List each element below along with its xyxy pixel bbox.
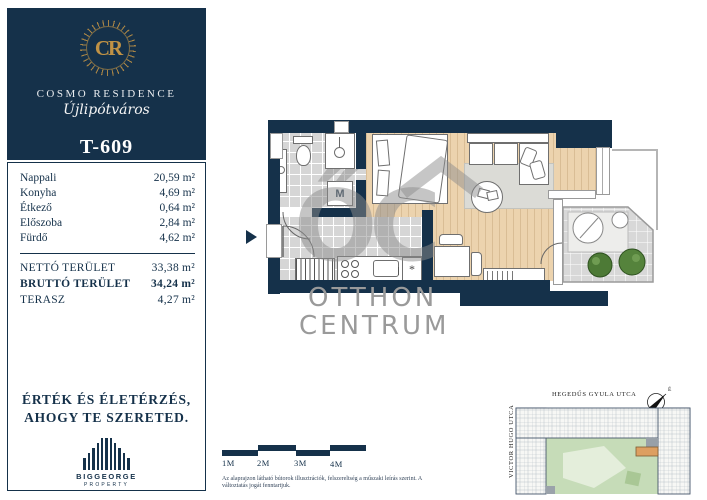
scale-segment [296,450,330,456]
disclaimer-text: Az alaprajzon látható bútorok illusztrác… [222,476,437,490]
developer-subtitle: PROPERTY [84,482,129,488]
terrace-door-arc [541,243,562,264]
building-gray-block [546,486,555,494]
brand-name: COSMO RESIDENCE [7,88,206,100]
table-row: Étkező 0,64m² [20,201,195,216]
building-wing-right [658,408,690,494]
totals-table: NETTÓ TERÜLET 33,38m² BRUTTÓ TERÜLET 34,… [20,260,195,308]
table-row: Nappali 20,59m² [20,171,195,186]
room-label: Étkező [20,201,52,216]
street-label-top: HEGEDŰS GYULA UTCA [552,391,636,398]
room-label: Konyha [20,186,56,201]
table-row-terasz: TERASZ 4,27m² [20,292,195,308]
total-unit: m² [182,294,195,306]
brochure-page: CR COSMO RESIDENCE Újlipótváros T-609 Na… [0,0,707,500]
room-value: 4,62 [159,232,179,244]
logo-inner-circle: CR [86,26,130,70]
total-unit: m² [181,278,195,290]
highlighted-unit [636,447,658,456]
plant-leaf [632,254,640,262]
room-value: 0,64 [159,202,179,214]
lounge-chair [573,213,603,243]
compass-label: É [668,387,672,393]
room-unit: m² [183,232,195,244]
scale-label: 1M [222,458,235,468]
table-row-brutto: BRUTTÓ TERÜLET 34,24m² [20,276,195,292]
scale-label: 3M [294,458,307,468]
total-label: BRUTTÓ TERÜLET [20,276,130,292]
total-label: TERASZ [20,292,65,308]
table-row: Fürdő 4,62m² [20,231,195,246]
room-unit: m² [183,187,195,199]
watermark-line2: CENTRUM [299,311,449,341]
scale-segment [330,445,366,451]
unit-id: T-609 [7,136,206,159]
watermark-line1: OTTHON [308,283,437,313]
scale-label: 2M [257,458,270,468]
terrace-table [612,212,628,228]
area-info-panel: Nappali 20,59m² Konyha 4,69m² Étkező 0,6… [7,162,206,491]
brand-panel: CR COSMO RESIDENCE Újlipótváros T-609 [7,8,206,160]
room-label: Előszoba [20,216,62,231]
room-unit: m² [183,217,195,229]
room-value: 2,84 [159,217,179,229]
biggeorge-logo: BIGGEORGE PROPERTY [8,438,205,488]
room-value: 4,69 [159,187,179,199]
plant-leaf [592,257,600,265]
site-plan [508,398,698,498]
watermark-monogram: ŐC [294,178,433,276]
tagline-line2: AHOGY TE SZERETED. [8,409,205,427]
scale-segment [258,445,296,451]
room-unit: m² [183,172,195,184]
logo-monogram: CR [95,36,121,61]
total-value: 4,27 [158,294,179,306]
room-area-table: Nappali 20,59m² Konyha 4,69m² Étkező 0,6… [20,171,195,246]
cosmo-residence-logo-icon: CR [80,20,136,76]
plant-icon [588,253,612,277]
table-divider [20,253,195,254]
total-value: 34,24 [151,278,178,290]
biggeorge-building-icon [83,438,129,470]
total-value: 33,38 [152,262,179,274]
table-row: Konyha 4,69m² [20,186,195,201]
scale-segment [222,450,258,456]
room-unit: m² [183,202,195,214]
tagline-line1: ÉRTÉK ÉS ÉLETÉRZÉS, [8,391,205,409]
building-gray-block [646,438,658,448]
room-label: Nappali [20,171,56,186]
brand-district: Újlipótváros [7,102,206,118]
developer-name: BIGGEORGE [76,472,137,481]
room-label: Fürdő [20,231,47,246]
table-row: Előszoba 2,84m² [20,216,195,231]
total-unit: m² [182,262,195,274]
scale-label: 4M [330,459,343,469]
room-value: 20,59 [154,172,180,184]
tagline: ÉRTÉK ÉS ÉLETÉRZÉS, AHOGY TE SZERETED. [8,391,205,427]
total-label: NETTÓ TERÜLET [20,260,115,276]
table-row-netto: NETTÓ TERÜLET 33,38m² [20,260,195,276]
plant-icon [619,249,645,275]
